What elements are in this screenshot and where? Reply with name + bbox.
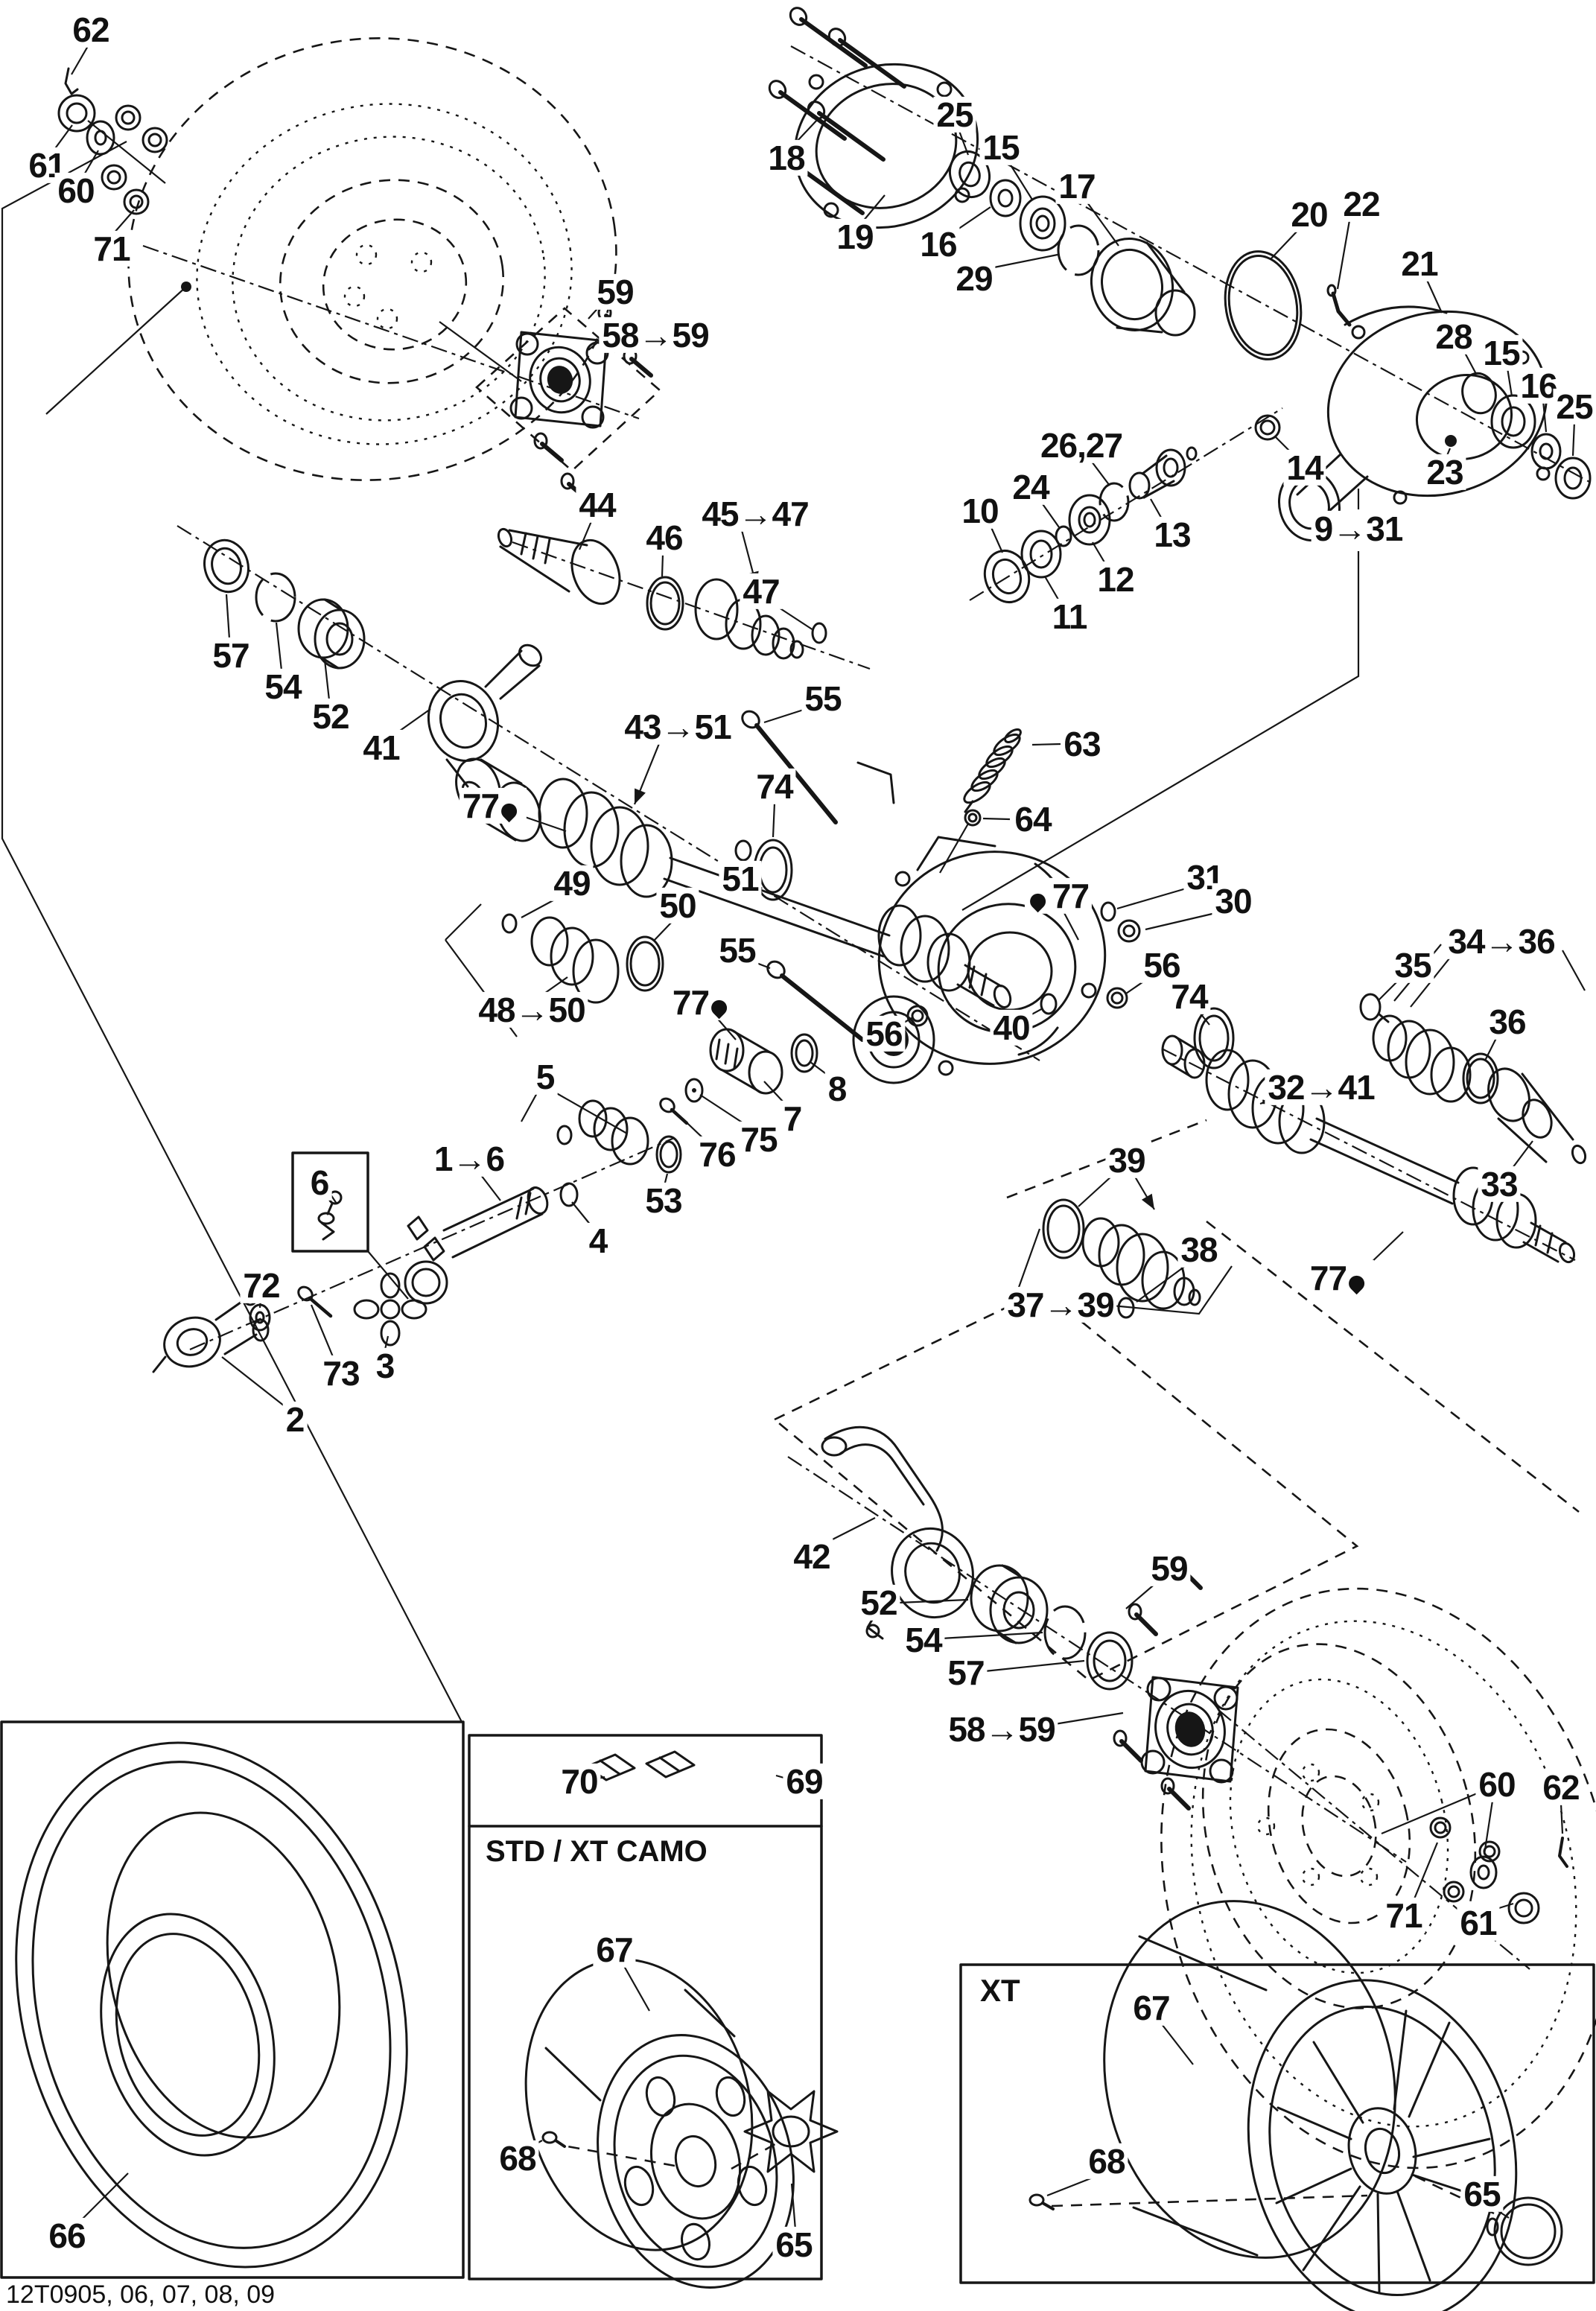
callout-number: 25 (1556, 387, 1592, 426)
callout-25: 25 (1553, 389, 1595, 425)
callout-number: 53 (645, 1181, 681, 1220)
callout-32-to-41: 32→41 (1265, 1069, 1377, 1105)
callout-14: 14 (1283, 450, 1326, 486)
callout-6: 6 (308, 1165, 332, 1201)
callout-number: 15 (982, 128, 1019, 167)
callout-54: 54 (261, 669, 304, 705)
callout-number: 21 (1401, 244, 1437, 283)
callout-37-to-39: 37→39 (1004, 1287, 1116, 1323)
callout-63: 63 (1061, 726, 1103, 762)
callout-number: 49 (553, 864, 590, 903)
callout-34-to-36: 34→36 (1445, 924, 1557, 959)
callout-3: 3 (373, 1348, 398, 1384)
callout-number: 45→47 (702, 495, 808, 533)
callout-16: 16 (917, 226, 959, 262)
callout-21: 21 (1398, 246, 1440, 282)
callout-number: 69 (786, 1762, 822, 1801)
callout-number: 35 (1394, 946, 1431, 985)
callout-number: 77 (1052, 877, 1089, 915)
callout-number: 77 (462, 786, 499, 825)
callout-61: 61 (1457, 1905, 1499, 1941)
callout-73: 73 (319, 1355, 362, 1391)
callout-77: 77 (460, 788, 527, 824)
callout-number: 29 (956, 259, 992, 298)
callout-7: 7 (780, 1101, 805, 1137)
callout-number: 54 (264, 667, 301, 706)
callout-number: 74 (1171, 977, 1207, 1016)
callout-51: 51 (719, 861, 761, 897)
callout-28: 28 (1432, 319, 1475, 355)
callout-68: 68 (496, 2140, 538, 2176)
callout-number: 7 (783, 1099, 802, 1138)
callout-number: 16 (920, 225, 956, 264)
callout-38: 38 (1177, 1232, 1220, 1268)
callout-60: 60 (1475, 1767, 1518, 1802)
parts-diagram-page: 6261607118192516152917202221281516252314… (0, 0, 1596, 2311)
grease-droplet-icon (498, 801, 521, 823)
callout-number: 23 (1426, 453, 1463, 492)
callout-number: 11 (1052, 597, 1087, 636)
callout-number: 47 (743, 572, 779, 611)
callout-number: 71 (93, 229, 130, 268)
callout-47: 47 (740, 573, 782, 609)
callout-12: 12 (1094, 562, 1136, 597)
callout-number: 51 (722, 859, 758, 898)
callout-23: 23 (1423, 454, 1466, 490)
callout-number: 62 (72, 10, 109, 49)
callout-number: 30 (1215, 882, 1251, 921)
callout-58-to-59: 58→59 (945, 1711, 1058, 1747)
callout-number: 50 (659, 886, 696, 925)
callout-26-27: 26,27 (1037, 427, 1125, 463)
callout-number: 16 (1520, 366, 1557, 405)
callout-number: 19 (836, 217, 873, 256)
callout-62: 62 (1539, 1770, 1582, 1805)
callout-35: 35 (1391, 947, 1434, 983)
callout-39: 39 (1105, 1142, 1148, 1178)
callout-33: 33 (1478, 1166, 1520, 1202)
callout-number: 8 (828, 1069, 847, 1108)
callout-60: 60 (54, 173, 97, 209)
callout-number: 54 (905, 1621, 941, 1659)
callout-number: 74 (756, 767, 792, 806)
callout-number: 10 (961, 492, 998, 530)
grease-droplet-icon (708, 997, 731, 1020)
callout-number: 2 (286, 1400, 305, 1439)
callout-number: 67 (596, 1930, 632, 1969)
callout-58-to-59: 58→59 (599, 317, 711, 353)
callout-20: 20 (1288, 197, 1330, 232)
callout-70: 70 (558, 1764, 600, 1799)
callout-number: 46 (646, 518, 682, 557)
callout-number: 60 (1478, 1765, 1515, 1804)
grease-droplet-icon (1027, 891, 1049, 913)
callout-number: 72 (243, 1266, 279, 1305)
callout-19: 19 (833, 219, 876, 255)
callout-number: 52 (312, 697, 349, 736)
callout-number: 4 (589, 1221, 608, 1260)
callout-15: 15 (1480, 335, 1522, 371)
callout-42: 42 (790, 1539, 833, 1574)
callout-number: 62 (1542, 1768, 1579, 1807)
callout-number: 18 (768, 139, 804, 177)
callout-number: 41 (363, 728, 399, 767)
callout-77: 77 (1025, 878, 1092, 914)
callout-25: 25 (933, 97, 976, 133)
callout-number: 57 (212, 636, 249, 675)
callout-number: 25 (936, 95, 973, 134)
callout-number: 26,27 (1040, 426, 1122, 465)
callout-number: 40 (993, 1008, 1029, 1047)
callout-number: 1→6 (434, 1139, 504, 1178)
callout-65: 65 (1460, 2176, 1503, 2212)
callout-30: 30 (1212, 883, 1254, 919)
callout-77: 77 (670, 985, 737, 1020)
callout-number: 58→59 (602, 316, 708, 355)
callout-number: 36 (1489, 1002, 1525, 1041)
callout-77: 77 (1307, 1260, 1374, 1296)
callout-59: 59 (1148, 1551, 1190, 1586)
callout-5: 5 (533, 1059, 558, 1095)
callout-55: 55 (801, 681, 844, 716)
callout-76: 76 (696, 1137, 738, 1172)
callout-number: 42 (793, 1537, 830, 1576)
callout-59: 59 (594, 274, 636, 310)
callout-52: 52 (857, 1585, 900, 1621)
callout-number: 33 (1481, 1165, 1517, 1204)
xt-box-title: XT (980, 1975, 1020, 2006)
callout-number: 63 (1064, 725, 1100, 763)
callout-number: 34→36 (1448, 922, 1554, 961)
callout-10: 10 (958, 493, 1001, 529)
callout-number: 15 (1483, 334, 1519, 372)
callout-number: 76 (699, 1135, 735, 1174)
callout-4: 4 (586, 1223, 611, 1259)
callout-number: 71 (1385, 1896, 1422, 1935)
catalog-sheet-code: 12T0905, 06, 07, 08, 09 (6, 2280, 275, 2310)
callout-number: 20 (1291, 195, 1327, 234)
callout-66: 66 (45, 2218, 88, 2254)
callout-15: 15 (979, 130, 1022, 165)
callout-22: 22 (1340, 186, 1382, 222)
callout-number: 77 (1310, 1259, 1347, 1297)
callout-11: 11 (1049, 599, 1090, 635)
callout-number: 59 (1151, 1549, 1187, 1588)
callout-52: 52 (309, 699, 352, 734)
callout-18: 18 (765, 140, 807, 176)
callout-57: 57 (944, 1655, 987, 1691)
callout-number: 56 (865, 1014, 902, 1053)
callout-46: 46 (643, 520, 685, 556)
callout-67: 67 (593, 1932, 635, 1968)
callout-45-to-47: 45→47 (699, 496, 811, 532)
callout-54: 54 (902, 1622, 944, 1658)
callout-72: 72 (240, 1268, 282, 1303)
callout-number: 70 (561, 1762, 597, 1801)
callout-56: 56 (862, 1016, 905, 1052)
callout-29: 29 (953, 261, 995, 296)
callout-number: 60 (57, 171, 94, 210)
callout-67: 67 (1130, 1990, 1172, 2026)
callout-40: 40 (990, 1010, 1032, 1046)
callout-number: 37→39 (1007, 1285, 1113, 1324)
callout-number: 65 (775, 2225, 812, 2264)
callout-71: 71 (90, 231, 133, 267)
callout-number: 44 (579, 486, 615, 524)
callout-62: 62 (69, 12, 112, 48)
callout-number: 28 (1435, 317, 1472, 356)
callout-number: 43→51 (624, 708, 731, 746)
callout-number: 14 (1286, 448, 1323, 487)
callout-number: 12 (1097, 560, 1134, 599)
callout-49: 49 (550, 865, 593, 901)
callout-1-to-6: 1→6 (431, 1141, 507, 1177)
callout-number: 13 (1154, 515, 1190, 554)
callout-9-to-31: 9→31 (1312, 511, 1406, 547)
callout-number: 32→41 (1268, 1068, 1374, 1107)
callout-number: 77 (673, 983, 709, 1022)
callout-number: 66 (48, 2216, 85, 2255)
callout-number: 52 (860, 1583, 897, 1622)
callout-number: 55 (804, 679, 841, 718)
callout-number: 64 (1014, 800, 1051, 839)
callout-number: 61 (1460, 1904, 1496, 1942)
callout-number: 9→31 (1314, 509, 1403, 548)
callout-50: 50 (656, 888, 699, 924)
callout-number: 48→50 (478, 991, 585, 1029)
callout-43-to-51: 43→51 (621, 709, 734, 745)
callout-17: 17 (1055, 168, 1098, 204)
callout-24: 24 (1009, 469, 1052, 505)
callout-number: 24 (1012, 468, 1049, 506)
callout-number: 22 (1343, 185, 1379, 223)
callout-number: 65 (1463, 2175, 1500, 2213)
callout-number: 68 (1088, 2142, 1125, 2181)
callout-number: 38 (1180, 1230, 1217, 1269)
callout-number: 68 (499, 2139, 535, 2178)
callout-number: 58→59 (948, 1710, 1055, 1749)
grease-droplet-icon (1346, 1273, 1368, 1295)
callout-number: 17 (1058, 167, 1095, 206)
callout-number: 75 (740, 1120, 777, 1159)
callout-71: 71 (1382, 1898, 1425, 1933)
callout-number: 59 (597, 273, 633, 311)
std-box-title: STD / XT CAMO (486, 1837, 708, 1866)
callout-75: 75 (737, 1122, 780, 1157)
callout-69: 69 (783, 1764, 825, 1799)
callout-36: 36 (1486, 1004, 1528, 1040)
callout-74: 74 (1168, 979, 1210, 1014)
callout-41: 41 (360, 730, 402, 766)
callout-53: 53 (642, 1183, 684, 1218)
callout-number: 6 (311, 1163, 329, 1202)
callout-number: 67 (1133, 1989, 1169, 2027)
callout-44: 44 (576, 487, 618, 523)
callout-number: 73 (322, 1354, 359, 1393)
callout-number: 39 (1108, 1141, 1145, 1180)
callout-65: 65 (772, 2227, 815, 2263)
callout-57: 57 (209, 638, 252, 673)
callout-48-to-50: 48→50 (475, 992, 588, 1028)
callout-74: 74 (753, 769, 795, 804)
callout-number: 57 (947, 1653, 984, 1692)
callout-number: 5 (536, 1058, 555, 1096)
callout-2: 2 (283, 1402, 308, 1437)
callout-layer: 6261607118192516152917202221281516252314… (0, 0, 1596, 2311)
callout-64: 64 (1011, 801, 1054, 837)
callout-13: 13 (1151, 517, 1193, 553)
callout-number: 55 (719, 931, 755, 970)
callout-55: 55 (716, 932, 758, 968)
callout-8: 8 (825, 1071, 850, 1107)
callout-number: 3 (376, 1347, 395, 1385)
callout-68: 68 (1085, 2143, 1128, 2179)
